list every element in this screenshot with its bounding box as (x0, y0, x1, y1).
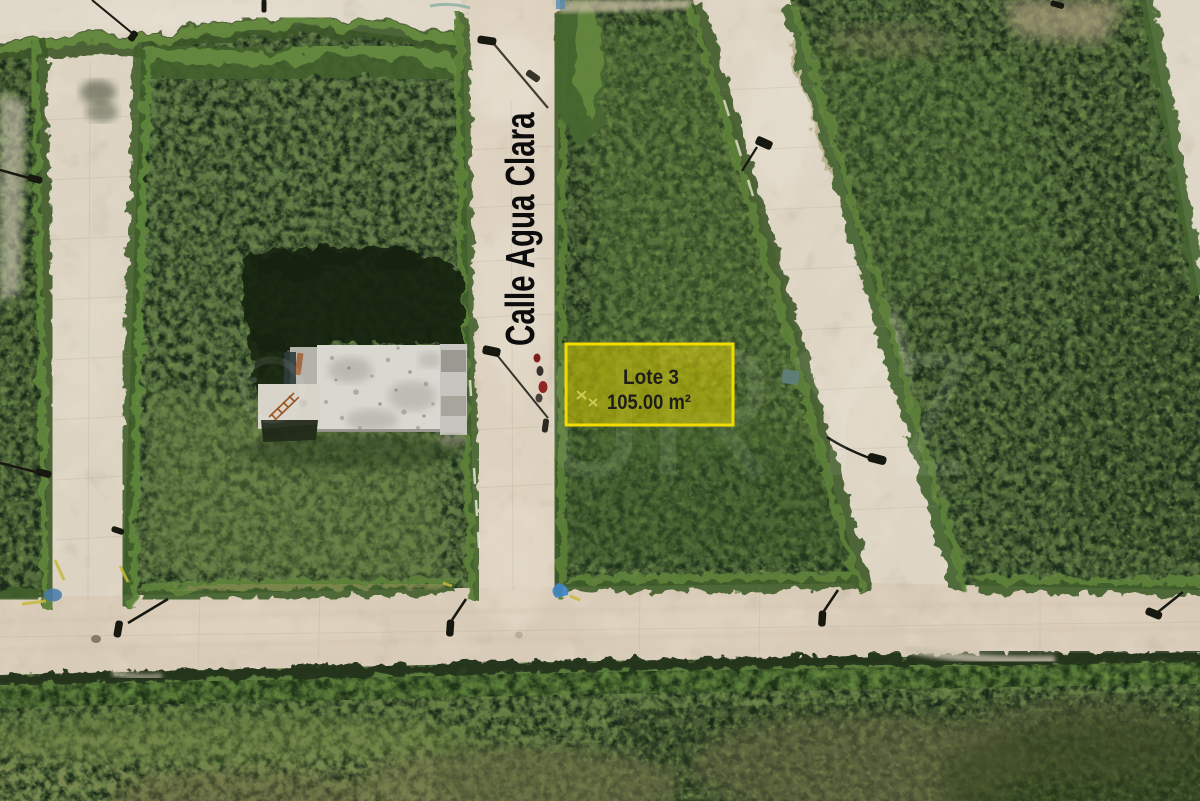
svg-text:105.00 m²: 105.00 m² (607, 391, 691, 414)
svg-text:Calle Agua Clara: Calle Agua Clara (498, 112, 543, 346)
svg-text:Lote 3: Lote 3 (623, 366, 679, 389)
